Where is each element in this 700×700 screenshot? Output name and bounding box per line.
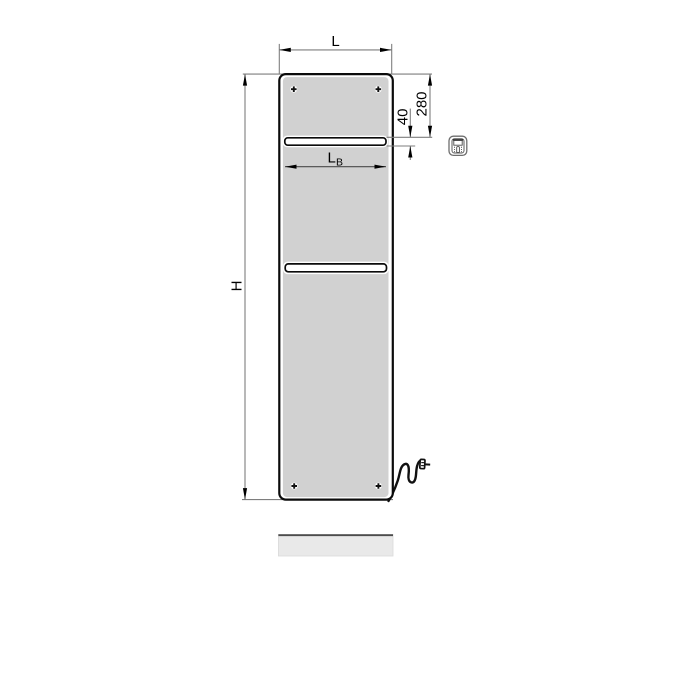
- svg-text:B: B: [336, 157, 343, 169]
- svg-text:280: 280: [414, 91, 431, 116]
- svg-text:H: H: [229, 281, 246, 292]
- svg-text:40: 40: [395, 109, 412, 126]
- svg-text:L: L: [328, 150, 336, 167]
- svg-text:L: L: [331, 33, 339, 50]
